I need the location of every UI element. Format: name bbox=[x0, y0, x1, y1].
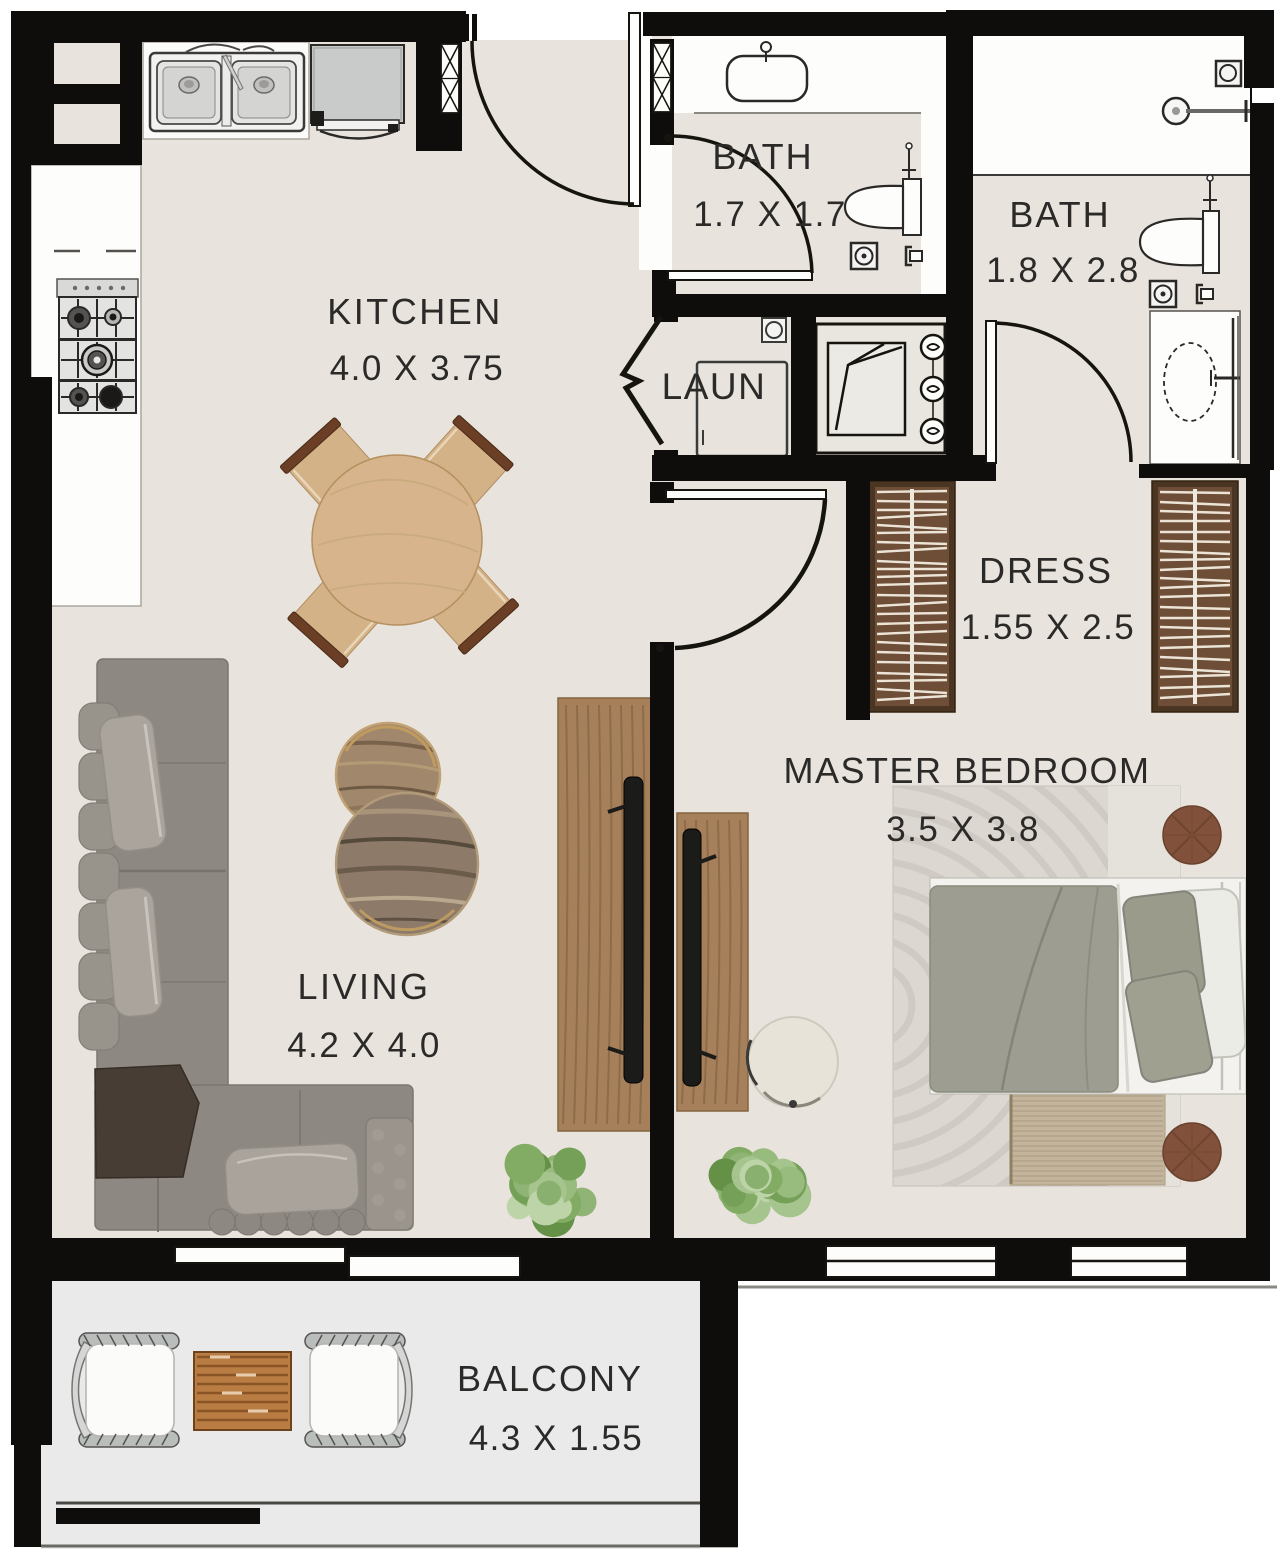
svg-text:1.55 X 2.5: 1.55 X 2.5 bbox=[961, 608, 1136, 647]
svg-text:4.2 X 4.0: 4.2 X 4.0 bbox=[287, 1026, 441, 1065]
svg-text:1.7 X 1.7: 1.7 X 1.7 bbox=[693, 195, 847, 234]
svg-text:BALCONY: BALCONY bbox=[457, 1358, 643, 1399]
svg-text:MASTER BEDROOM: MASTER BEDROOM bbox=[783, 750, 1150, 791]
svg-text:LIVING: LIVING bbox=[297, 966, 430, 1007]
svg-text:1.8 X 2.8: 1.8 X 2.8 bbox=[986, 251, 1140, 290]
svg-text:BATH: BATH bbox=[1009, 194, 1110, 235]
svg-text:4.3 X 1.55: 4.3 X 1.55 bbox=[469, 1419, 644, 1458]
svg-text:KITCHEN: KITCHEN bbox=[327, 291, 503, 332]
svg-text:3.5 X 3.8: 3.5 X 3.8 bbox=[886, 810, 1040, 849]
svg-text:4.0 X 3.75: 4.0 X 3.75 bbox=[330, 349, 505, 388]
svg-text:DRESS: DRESS bbox=[979, 550, 1113, 591]
svg-text:LAUN: LAUN bbox=[662, 366, 767, 407]
svg-text:BATH: BATH bbox=[712, 136, 813, 177]
